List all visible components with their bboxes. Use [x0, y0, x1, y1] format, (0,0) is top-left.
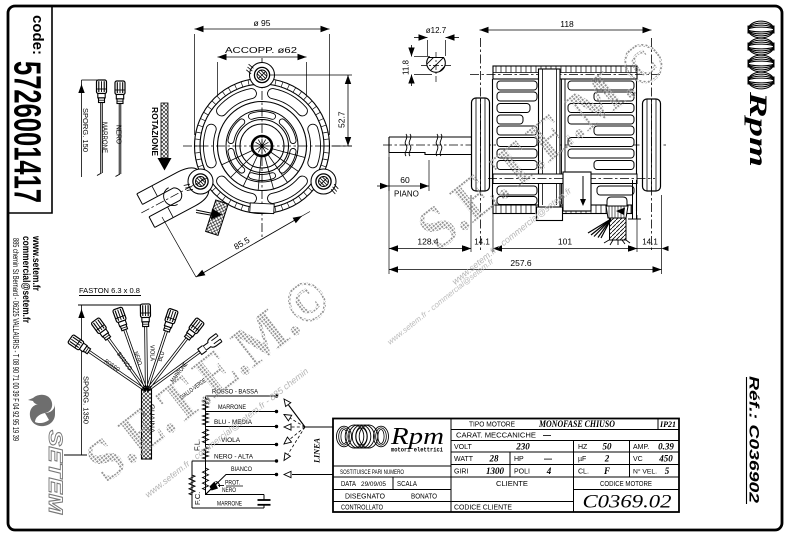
svg-text:SOSTITUISCE PARI NUMERO: SOSTITUISCE PARI NUMERO [340, 469, 404, 476]
svg-text:CODICE MOTORE: CODICE MOTORE [600, 481, 652, 488]
svg-text:CARAT. MECCANICHE: CARAT. MECCANICHE [456, 433, 536, 440]
svg-text:µF: µF [578, 456, 586, 463]
svg-text:885 chemin St Bernard - 06225: 885 chemin St Bernard - 06225 VALLAURIS … [11, 238, 20, 441]
svg-text:WATT: WATT [454, 456, 474, 463]
svg-text:SCALA: SCALA [397, 481, 417, 488]
svg-text:motori elettrici: motori elettrici [391, 447, 443, 454]
svg-text:CODICE CLIENTE: CODICE CLIENTE [454, 503, 512, 512]
svg-text:DATA: DATA [341, 481, 356, 488]
svg-text:PROT.: PROT. [225, 480, 240, 487]
svg-text:50: 50 [603, 442, 613, 452]
svg-text:60: 60 [400, 175, 410, 185]
svg-text:ø12.7: ø12.7 [426, 26, 447, 35]
svg-text:52.7: 52.7 [337, 111, 347, 128]
svg-text:ø 95: ø 95 [253, 18, 270, 28]
svg-text:PIANO: PIANO [394, 190, 419, 199]
svg-text:TIPO MOTORE: TIPO MOTORE [469, 422, 515, 429]
svg-text:BIANCO: BIANCO [231, 466, 252, 473]
svg-text:MONOFASE CHIUSO: MONOFASE CHIUSO [538, 419, 615, 429]
svg-text:SPORG. 1350: SPORG. 1350 [82, 376, 91, 424]
svg-text:commercial@setem.fr: commercial@setem.fr [20, 236, 31, 323]
svg-text:SPORG. 150: SPORG. 150 [81, 108, 90, 152]
svg-text:NERO - ALTA: NERO - ALTA [214, 454, 254, 461]
svg-text:14.1: 14.1 [642, 238, 658, 247]
svg-text:5: 5 [665, 466, 670, 476]
svg-text:POLI: POLI [514, 469, 530, 476]
svg-text:code:: code: [29, 15, 46, 55]
svg-text:14.1: 14.1 [474, 238, 490, 247]
svg-text:ACCOPP. ø62: ACCOPP. ø62 [225, 46, 298, 55]
svg-text:CL.: CL. [578, 469, 589, 476]
svg-text:IP21: IP21 [659, 420, 676, 429]
svg-text:118: 118 [560, 19, 574, 29]
svg-text:DISEGNATO: DISEGNATO [345, 494, 386, 501]
svg-text:5726001417: 5726001417 [6, 61, 48, 203]
svg-text:C0369.02: C0369.02 [583, 493, 672, 513]
svg-text:0.39: 0.39 [658, 442, 674, 452]
svg-text:Rpm: Rpm [744, 90, 771, 167]
svg-text:N° VEL.: N° VEL. [633, 468, 657, 476]
svg-text:AMP.: AMP. [633, 444, 649, 451]
svg-text:4: 4 [546, 466, 552, 476]
svg-text:SETEM: SETEM [44, 430, 65, 516]
svg-text:FASTON 6.3 x 0.8: FASTON 6.3 x 0.8 [79, 286, 140, 295]
svg-text:NERO: NERO [222, 487, 236, 494]
svg-text:450: 450 [658, 454, 673, 464]
svg-text:29/09/05: 29/09/05 [361, 481, 386, 488]
svg-text:101: 101 [558, 237, 572, 247]
svg-text:230: 230 [515, 442, 530, 452]
svg-text:VOLT: VOLT [454, 444, 472, 451]
svg-text:GIRI: GIRI [454, 469, 468, 476]
svg-text:28: 28 [489, 454, 500, 464]
svg-text:HP: HP [514, 456, 524, 463]
svg-text:F.C.: F.C. [193, 492, 202, 505]
svg-text:CLIENTE: CLIENTE [496, 479, 528, 488]
svg-text:257.6: 257.6 [510, 258, 532, 268]
svg-text:—: — [544, 455, 552, 464]
svg-text:CONTROLLATO: CONTROLLATO [341, 505, 383, 512]
svg-text:2: 2 [604, 454, 610, 464]
svg-text:—: — [543, 431, 551, 440]
svg-text:MARRONE: MARRONE [217, 501, 242, 508]
svg-text:VIOLA: VIOLA [148, 345, 155, 362]
svg-text:LINEA: LINEA [313, 437, 322, 464]
svg-text:BONATO: BONATO [411, 494, 437, 501]
svg-text:MARRONE: MARRONE [101, 122, 108, 153]
svg-text:F: F [603, 466, 610, 476]
svg-text:11.8: 11.8 [402, 59, 411, 75]
svg-text:1300: 1300 [486, 466, 505, 476]
svg-text:ROTAZIONE: ROTAZIONE [150, 107, 160, 156]
svg-text:Réf.: C036902: Réf.: C036902 [747, 376, 763, 503]
svg-text:NERO: NERO [115, 125, 122, 145]
svg-text:VC: VC [633, 456, 643, 463]
svg-text:HZ: HZ [578, 444, 588, 451]
